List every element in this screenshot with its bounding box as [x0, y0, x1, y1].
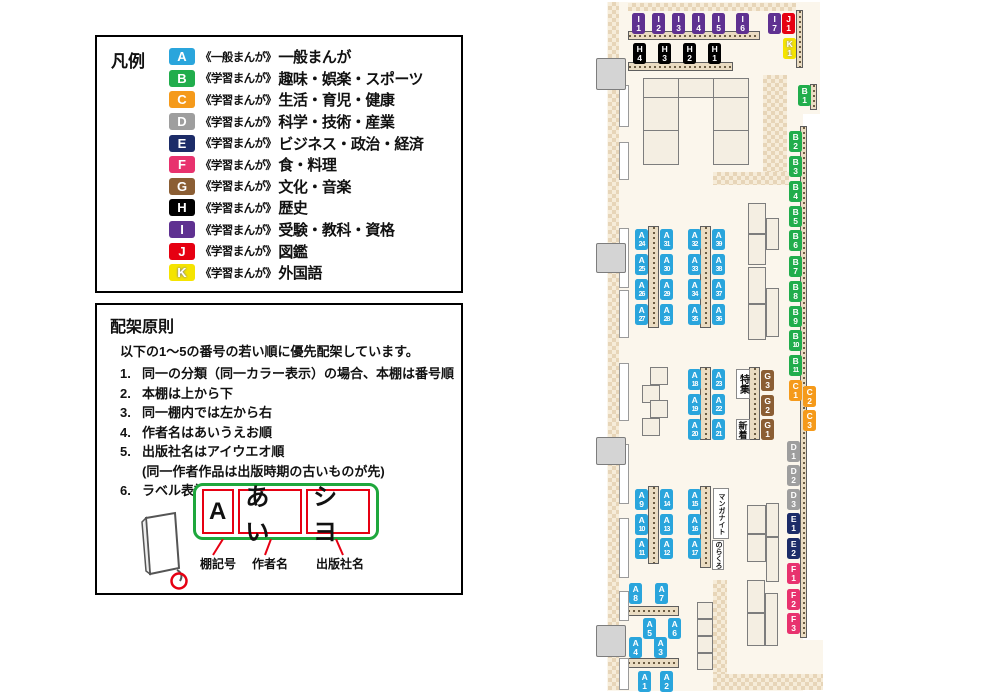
page: { "legend": { "title": "凡例", "items": [ … [0, 0, 1000, 700]
special-feature-label: 特集 [736, 369, 750, 399]
floor-map: A1A2A3A4A5A6A7A8A9A10A11A12A13A14A15A16A… [0, 0, 1000, 700]
norakuro-label: のらくろ [712, 540, 724, 570]
map-text-labels: 特集新着マンガナイトのらくろ [0, 0, 1000, 700]
manga-night-label: マンガナイト [713, 488, 729, 539]
new-arrivals-label: 新着 [736, 419, 750, 440]
